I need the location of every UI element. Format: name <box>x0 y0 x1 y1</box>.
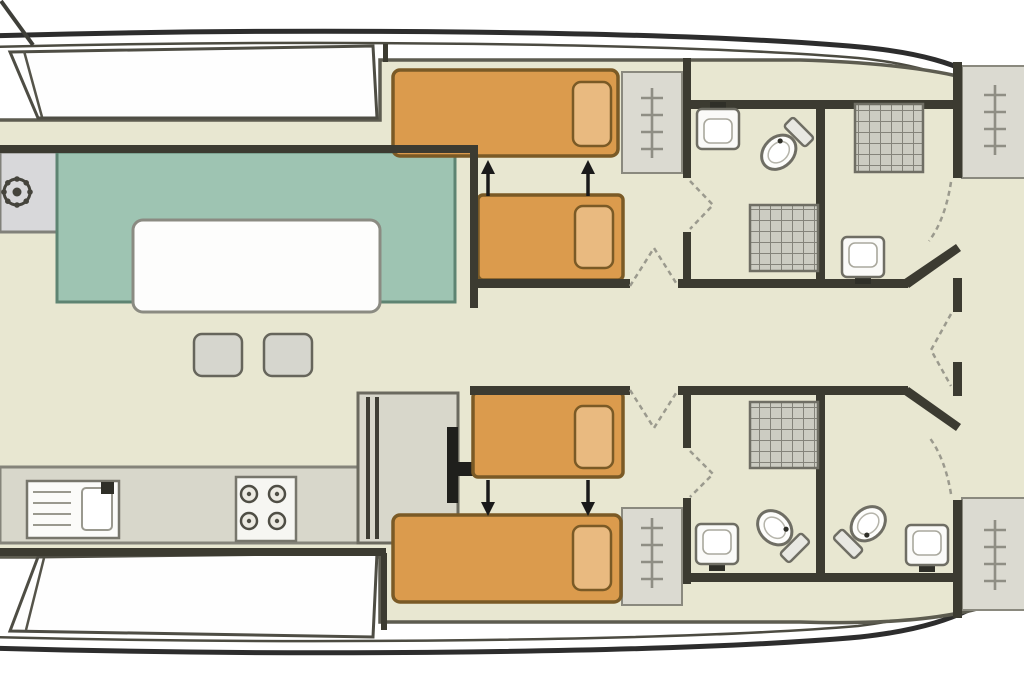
berth-1-pillow <box>573 82 611 146</box>
sun-lounger-top <box>10 46 377 118</box>
sink-icon <box>842 237 884 284</box>
wall-saloon-top <box>0 145 478 153</box>
helm-wheel-icon <box>1 176 33 208</box>
sun-lounger-top-cushion <box>10 46 377 118</box>
stool-right <box>264 334 312 376</box>
helm-console <box>0 152 58 232</box>
wall-right-a <box>953 62 962 178</box>
galley-sink <box>27 481 119 538</box>
wall-corridor-bottom-right <box>678 386 908 395</box>
berth-4-pillow <box>573 526 611 590</box>
shower-tray <box>855 104 923 172</box>
wall-deck-divider-top <box>383 44 388 62</box>
shower-tray <box>750 402 818 468</box>
wall-cabin-top-right-b <box>683 232 691 288</box>
galley <box>0 467 364 543</box>
sink-icon <box>697 102 739 149</box>
wall-right-c <box>953 362 962 396</box>
wall-corridor-top-left <box>470 279 630 288</box>
steps-panel-top-mid <box>622 72 682 173</box>
sink-icon <box>906 525 948 572</box>
wall-deck-divider-bottom <box>381 553 387 630</box>
galley-faucet-icon <box>101 482 114 494</box>
sun-lounger-bottom-cushion <box>10 553 377 637</box>
stove <box>236 477 296 541</box>
wall-cabin-bottom-right-a <box>683 388 691 448</box>
galley-sink-bowl <box>82 488 112 530</box>
steps-panel <box>962 66 1024 178</box>
wall-corridor-top-right <box>678 279 908 288</box>
steps-panel <box>962 498 1024 610</box>
wall-cabin-bottom-right-b <box>683 498 691 584</box>
steps-panel-top-right <box>962 66 1024 178</box>
saloon-table <box>133 220 380 312</box>
sink-icon <box>696 524 738 571</box>
steps-panel-bottom-right <box>962 498 1024 610</box>
wall-cabin-top-right-a <box>683 58 691 178</box>
berth-3-pillow <box>575 406 613 468</box>
steps-panel-bottom-mid <box>622 508 682 605</box>
wall-galley-bottom <box>0 548 386 556</box>
wall-corridor-bottom-left <box>470 386 630 395</box>
boat-floor-plan <box>0 0 1024 680</box>
floor-plan-canvas <box>0 0 1024 680</box>
berth-2-pillow <box>575 206 613 268</box>
wall-right-d <box>953 500 962 618</box>
wall-right-b <box>953 278 962 312</box>
sun-lounger-bottom <box>10 553 377 637</box>
shower-tray <box>750 205 818 271</box>
stool-left <box>194 334 242 376</box>
